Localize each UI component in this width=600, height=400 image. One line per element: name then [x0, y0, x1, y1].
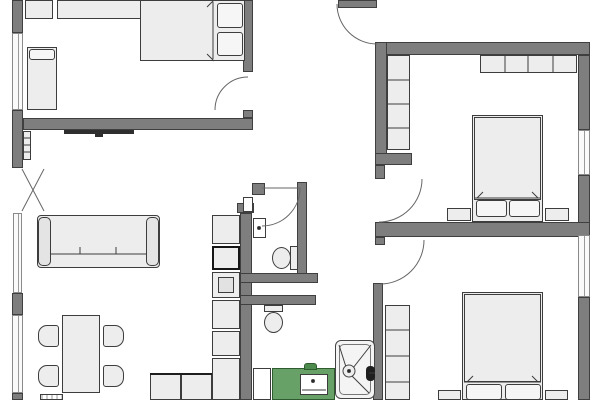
bedroom2-door-jamb [375, 165, 385, 179]
wall-niche [243, 197, 253, 212]
shaft-wall-b [240, 295, 316, 305]
wc-washbasin [253, 218, 266, 238]
wc-toilet-bowl [272, 247, 291, 269]
floor-plan [0, 0, 600, 400]
pillow [476, 200, 507, 217]
chair [103, 325, 124, 347]
sofa-arm-right [146, 217, 159, 266]
tall-cabinet [212, 358, 240, 400]
dresser-a [25, 0, 53, 19]
kitchen-counter [150, 373, 181, 400]
dining-table [62, 315, 100, 393]
bedroom3-door-arc [380, 240, 424, 284]
shaft-wall-a [240, 273, 318, 283]
sofa-arm-left [38, 217, 51, 266]
wall-shelf [23, 131, 31, 160]
wardrobe [480, 55, 577, 73]
left-wall-b [12, 110, 23, 168]
nightstand [545, 208, 569, 221]
mattress [474, 117, 541, 200]
hall-top-door-arc [337, 4, 377, 44]
top-door-stub-wall [338, 0, 377, 8]
nightstand [545, 390, 568, 400]
washing-machine [253, 368, 271, 400]
left-wall-c [12, 293, 23, 315]
left-wall-d [12, 393, 23, 400]
bedroom2-sw-stub-wall [375, 153, 412, 165]
single-bed-pillow [29, 49, 55, 60]
tall-cabinet [212, 215, 240, 244]
nightstand [438, 390, 461, 400]
shower-head [366, 366, 375, 381]
wc-toilet-tank [290, 246, 298, 270]
right-section-north-wall [375, 42, 590, 55]
right-outer-wall-a [578, 55, 590, 130]
right-outer-wall-c [578, 297, 590, 400]
middle-horizontal-wall [375, 222, 590, 237]
wardrobe [385, 305, 410, 400]
entrance-door-leaf-b [22, 169, 44, 211]
fridge [212, 246, 240, 270]
bedroom2-door-arc [379, 179, 422, 222]
bath-toilet-bowl [264, 312, 283, 333]
mattress [464, 294, 541, 382]
entrance-door-leaf-a [22, 169, 44, 211]
chair [38, 365, 59, 387]
vanity-nub [304, 363, 317, 370]
wardrobe [387, 55, 410, 150]
pillow [466, 384, 502, 400]
bathroom-sink [300, 374, 328, 395]
bedroom3-door-jamb [375, 237, 385, 245]
nightstand [447, 208, 471, 221]
left-window-2 [13, 213, 22, 293]
bedroom1-south-wall [23, 118, 253, 130]
bedroom2-west-wall [375, 42, 387, 163]
wc-north-jamb [252, 183, 265, 195]
kitchen-counter [181, 373, 212, 400]
tv-mount [95, 134, 103, 137]
left-wall-a [12, 0, 23, 33]
kitchen-tall-wall [240, 213, 252, 400]
right-window-2 [578, 235, 590, 297]
left-window-3 [12, 315, 23, 393]
tall-cabinet [212, 331, 240, 356]
chair [103, 365, 124, 387]
bedroom1-east-jamb [243, 110, 253, 118]
pillow [509, 200, 540, 217]
wc-east-wall [297, 182, 307, 283]
pillow [505, 384, 541, 400]
chair [38, 325, 59, 347]
left-window-1 [12, 33, 23, 110]
sofa [37, 215, 160, 268]
bedroom1-door-arc [215, 77, 248, 110]
wc-door-arc [262, 188, 300, 226]
double-bed-pillow-b [217, 32, 243, 56]
double-bed-pillow-a [217, 3, 243, 28]
right-window-1 [578, 130, 590, 175]
bath-toilet-tank [264, 305, 283, 312]
floor-vent [40, 394, 63, 400]
dresser-b [57, 0, 153, 19]
tall-cabinet [212, 300, 240, 329]
oven-inner [218, 277, 234, 293]
